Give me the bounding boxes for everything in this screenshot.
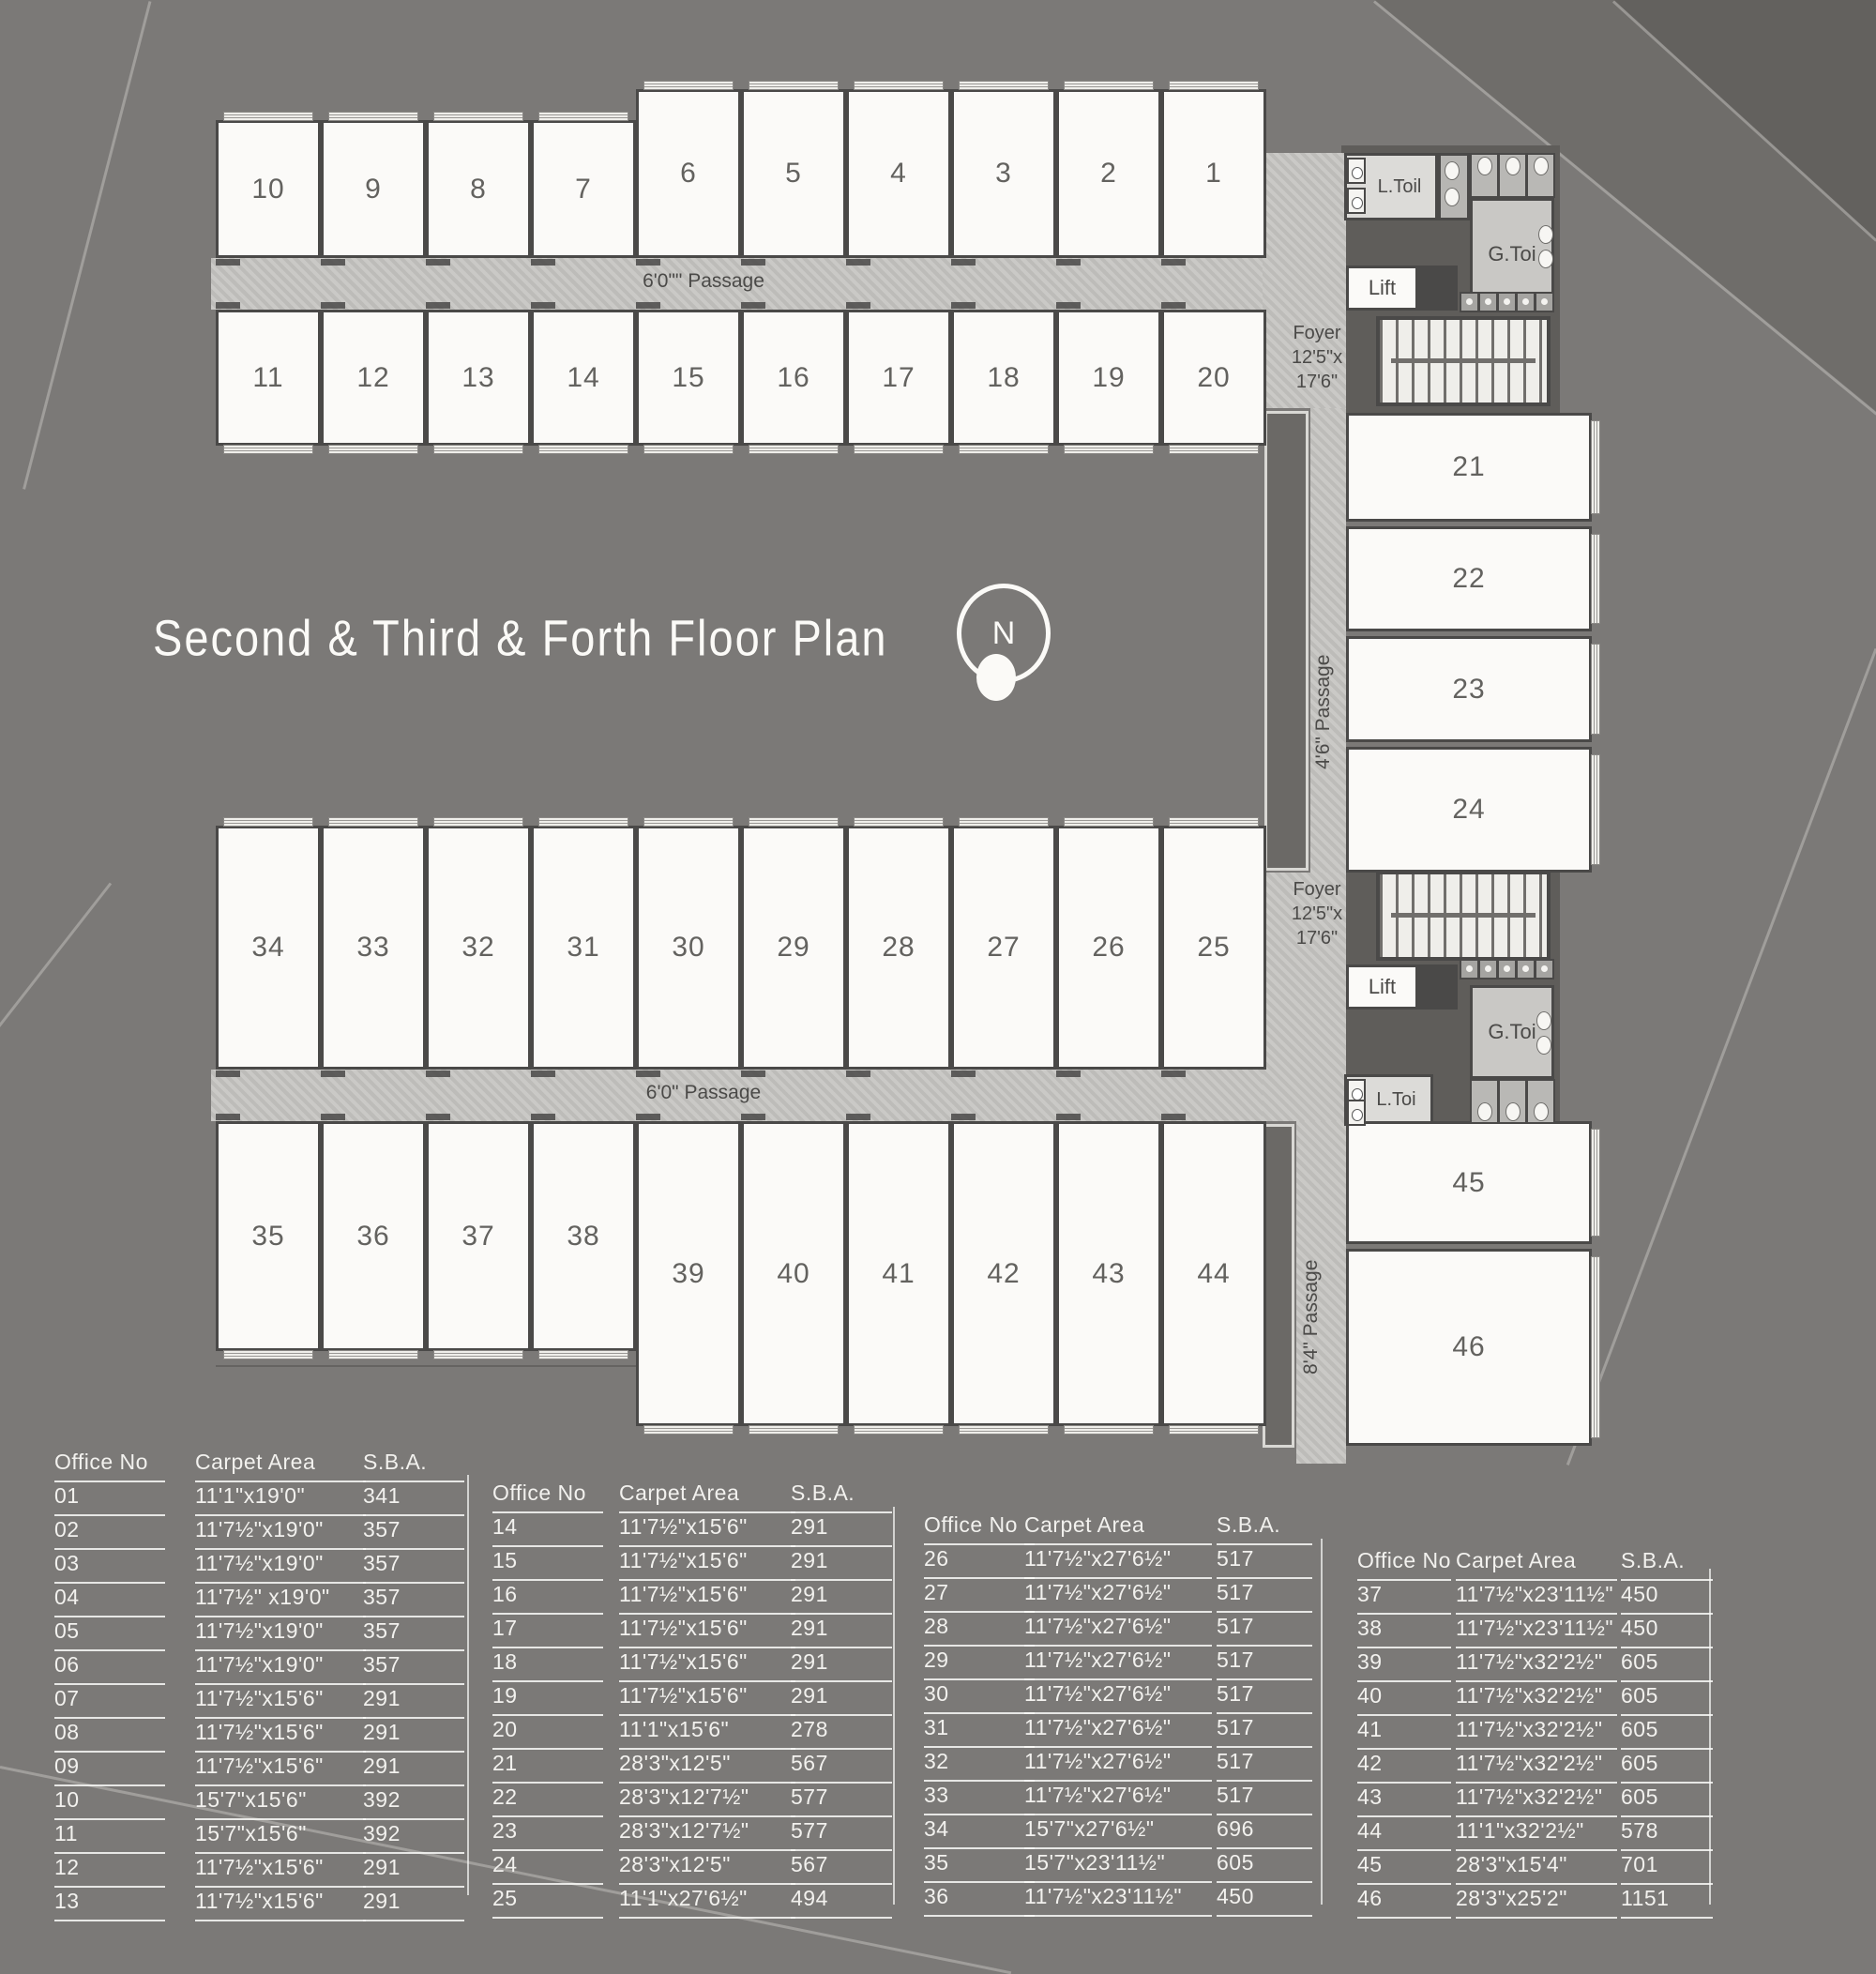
window-sill xyxy=(538,112,628,121)
carpet-area-cell: 11'1"x27'6½" xyxy=(619,1886,795,1919)
office-no-cell: 05 xyxy=(54,1618,165,1651)
office-unit: 4 xyxy=(846,89,951,258)
toilet-fixture xyxy=(1534,1102,1549,1121)
basin-fixture xyxy=(1538,225,1553,244)
carpet-area-cell: 11'7½"x27'6½" xyxy=(1024,1648,1212,1680)
wash-basin-dot xyxy=(1485,965,1491,972)
window-sill xyxy=(643,1425,734,1435)
door-threshold-strip xyxy=(216,1114,1263,1120)
table-divider xyxy=(1321,1539,1323,1905)
sba-cell: 278 xyxy=(791,1717,892,1750)
toilet-fixture xyxy=(1534,157,1549,175)
carpet-area-cell: 11'7½"x19'0" xyxy=(195,1652,366,1685)
sba-cell: 605 xyxy=(1621,1751,1713,1784)
office-no-cell: 33 xyxy=(924,1783,1035,1815)
sba-cell: 578 xyxy=(1621,1818,1713,1851)
window-sill xyxy=(433,1350,523,1359)
office-no-cell: 04 xyxy=(54,1585,165,1617)
window-sill xyxy=(223,817,313,827)
sba-cell: 291 xyxy=(791,1683,892,1716)
passage-top-label: 6'0"" Passage xyxy=(525,270,882,293)
table-header-carpet-area: Carpet Area xyxy=(1024,1512,1212,1545)
sba-cell: 577 xyxy=(791,1818,892,1851)
office-unit: 43 xyxy=(1056,1121,1161,1426)
passage-right-lower-label: 8'4" Passage xyxy=(1300,1131,1323,1374)
sba-cell: 567 xyxy=(791,1751,892,1784)
office-no-cell: 13 xyxy=(54,1889,165,1921)
stair-rail xyxy=(1391,913,1535,918)
carpet-area-cell: 11'7½"x23'11½" xyxy=(1456,1616,1617,1648)
office-unit: 36 xyxy=(321,1121,426,1351)
carpet-area-cell: 11'7½"x23'11½" xyxy=(1024,1884,1212,1917)
table-header-office-no: Office No xyxy=(492,1480,603,1513)
office-unit: 16 xyxy=(741,310,846,446)
wash-basin-dot xyxy=(1504,965,1510,972)
window-sill xyxy=(1064,81,1154,90)
office-no-cell: 26 xyxy=(924,1546,1035,1579)
window-sill xyxy=(1169,817,1259,827)
office-unit: 7 xyxy=(531,120,636,258)
office-no-cell: 08 xyxy=(54,1720,165,1753)
wash-basin-cell xyxy=(1478,959,1498,979)
foyer-label-middle: Foyer 12'5"x 17'6" xyxy=(1274,877,1360,950)
window-sill xyxy=(1169,445,1259,454)
table-divider xyxy=(1709,1569,1711,1905)
window-sill xyxy=(1169,81,1259,90)
window-sill xyxy=(854,445,944,454)
sba-cell: 291 xyxy=(791,1514,892,1547)
wash-basin-cell xyxy=(1460,959,1479,979)
office-unit: 23 xyxy=(1346,636,1592,742)
office-unit: 6 xyxy=(636,89,741,258)
office-no-cell: 22 xyxy=(492,1784,603,1817)
table-header-carpet-area: Carpet Area xyxy=(1456,1548,1617,1581)
sba-cell: 291 xyxy=(363,1720,464,1753)
basin-fixture xyxy=(1445,161,1460,180)
office-no-cell: 18 xyxy=(492,1649,603,1682)
wc-seat xyxy=(1352,167,1363,179)
office-no-cell: 16 xyxy=(492,1582,603,1615)
office-unit: 5 xyxy=(741,89,846,258)
window-sill xyxy=(328,1350,418,1359)
door-threshold-strip xyxy=(216,1071,1263,1077)
wall-block xyxy=(1418,964,1458,1010)
office-no-cell: 06 xyxy=(54,1652,165,1685)
window-sill xyxy=(1591,1129,1600,1237)
office-unit: 3 xyxy=(951,89,1056,258)
window-sill xyxy=(328,112,418,121)
carpet-area-cell: 11'7½"x27'6½" xyxy=(1024,1749,1212,1782)
office-unit: 30 xyxy=(636,826,741,1070)
wash-basin-cell xyxy=(1460,292,1479,312)
carpet-area-cell: 11'7½"x32'2½" xyxy=(1456,1683,1617,1716)
carpet-area-cell: 11'7½"x32'2½" xyxy=(1456,1649,1617,1682)
office-no-cell: 17 xyxy=(492,1616,603,1648)
office-unit: 15 xyxy=(636,310,741,446)
north-compass: N xyxy=(957,584,1051,683)
office-no-cell: 28 xyxy=(924,1614,1035,1647)
wash-basin-dot xyxy=(1466,965,1473,972)
carpet-area-cell: 11'7½"x27'6½" xyxy=(1024,1614,1212,1647)
wash-basin-dot xyxy=(1485,298,1491,305)
window-sill xyxy=(328,445,418,454)
window-sill xyxy=(749,81,839,90)
window-sill xyxy=(643,81,734,90)
wash-basin-cell xyxy=(1516,292,1536,312)
carpet-area-cell: 11'7½"x27'6½" xyxy=(1024,1783,1212,1815)
carpet-area-cell: 11'7½"x15'6" xyxy=(619,1683,795,1716)
sba-cell: 357 xyxy=(363,1585,464,1617)
office-no-cell: 07 xyxy=(54,1686,165,1719)
carpet-area-cell: 15'7"x15'6" xyxy=(195,1821,366,1854)
carpet-area-cell: 11'7½"x15'6" xyxy=(619,1582,795,1615)
sba-cell: 517 xyxy=(1217,1648,1312,1680)
wash-basin-cell xyxy=(1497,959,1517,979)
passage-right-upper-label: 4'6" Passage xyxy=(1312,525,1335,769)
window-sill xyxy=(959,445,1049,454)
carpet-area-cell: 11'7½"x32'2½" xyxy=(1456,1751,1617,1784)
sba-cell: 450 xyxy=(1621,1582,1713,1615)
window-sill xyxy=(749,817,839,827)
window-sill xyxy=(538,817,628,827)
wc-seat xyxy=(1352,1109,1363,1121)
sba-cell: 517 xyxy=(1217,1783,1312,1815)
carpet-area-cell: 11'7½"x23'11½" xyxy=(1456,1582,1617,1615)
toilet-fixture xyxy=(1477,1102,1492,1121)
office-unit: 21 xyxy=(1346,413,1592,522)
wash-basin-cell xyxy=(1516,959,1536,979)
office-no-cell: 01 xyxy=(54,1483,165,1516)
carpet-area-cell: 28'3"x12'5" xyxy=(619,1852,795,1885)
table-divider xyxy=(467,1475,469,1895)
foyer-line: 12'5"x xyxy=(1274,902,1360,926)
sba-cell: 450 xyxy=(1621,1616,1713,1648)
office-no-cell: 39 xyxy=(1357,1649,1451,1682)
wash-basin-cell xyxy=(1497,292,1517,312)
office-no-cell: 31 xyxy=(924,1715,1035,1748)
office-no-cell: 02 xyxy=(54,1517,165,1550)
window-sill xyxy=(643,817,734,827)
window-sill xyxy=(854,81,944,90)
wash-basin-dot xyxy=(1541,298,1548,305)
office-no-cell: 21 xyxy=(492,1751,603,1784)
sba-cell: 696 xyxy=(1217,1816,1312,1849)
window-sill xyxy=(749,445,839,454)
window-sill xyxy=(433,817,523,827)
office-no-cell: 15 xyxy=(492,1548,603,1581)
office-unit: 32 xyxy=(426,826,531,1070)
office-unit: 39 xyxy=(636,1121,741,1426)
office-no-cell: 11 xyxy=(54,1821,165,1854)
wash-basin-dot xyxy=(1541,965,1548,972)
window-sill xyxy=(1591,534,1600,624)
sba-cell: 392 xyxy=(363,1821,464,1854)
office-no-cell: 12 xyxy=(54,1855,165,1888)
carpet-area-cell: 11'7½"x15'6" xyxy=(195,1754,366,1786)
carpet-area-cell: 11'1"x32'2½" xyxy=(1456,1818,1617,1851)
light-shaft-upper xyxy=(1264,411,1309,871)
office-no-cell: 09 xyxy=(54,1754,165,1786)
carpet-area-cell: 11'7½"x15'6" xyxy=(195,1720,366,1753)
office-unit: 19 xyxy=(1056,310,1161,446)
toilet-fixture xyxy=(1505,157,1520,175)
compass-n: N xyxy=(992,615,1016,652)
office-no-cell: 41 xyxy=(1357,1717,1451,1750)
window-sill xyxy=(223,445,313,454)
carpet-area-cell: 11'7½"x27'6½" xyxy=(1024,1681,1212,1714)
office-unit: 2 xyxy=(1056,89,1161,258)
office-no-cell: 35 xyxy=(924,1850,1035,1883)
sba-cell: 357 xyxy=(363,1517,464,1550)
table-header-sba: S.B.A. xyxy=(791,1480,892,1513)
foyer-line: 17'6" xyxy=(1274,926,1360,950)
sba-cell: 605 xyxy=(1621,1717,1713,1750)
office-no-cell: 30 xyxy=(924,1681,1035,1714)
window-sill xyxy=(223,112,313,121)
window-sill xyxy=(959,81,1049,90)
window-sill xyxy=(538,445,628,454)
window-sill xyxy=(1591,420,1600,514)
window-sill xyxy=(433,445,523,454)
carpet-area-cell: 15'7"x23'11½" xyxy=(1024,1850,1212,1883)
sba-cell: 357 xyxy=(363,1618,464,1651)
carpet-area-cell: 28'3"x12'7½" xyxy=(619,1818,795,1851)
office-unit: 17 xyxy=(846,310,951,446)
sba-cell: 517 xyxy=(1217,1681,1312,1714)
window-sill xyxy=(749,1425,839,1435)
sba-cell: 291 xyxy=(363,1754,464,1786)
foyer-line: Foyer xyxy=(1274,321,1360,345)
office-no-cell: 25 xyxy=(492,1886,603,1919)
foyer-line: Foyer xyxy=(1274,877,1360,902)
sba-cell: 605 xyxy=(1621,1683,1713,1716)
table-header-sba: S.B.A. xyxy=(1621,1548,1713,1581)
carpet-area-cell: 11'7½"x15'6" xyxy=(195,1855,366,1888)
office-no-cell: 29 xyxy=(924,1648,1035,1680)
lift-label-top: Lift xyxy=(1369,276,1396,300)
carpet-area-cell: 28'3"x12'5" xyxy=(619,1751,795,1784)
office-unit: 12 xyxy=(321,310,426,446)
sba-cell: 291 xyxy=(791,1616,892,1648)
carpet-area-cell: 11'7½"x19'0" xyxy=(195,1517,366,1550)
foyer-line: 17'6" xyxy=(1274,370,1360,394)
passage-middle-label: 6'0" Passage xyxy=(525,1082,882,1104)
ladies-toilet-label-top: L.Toil xyxy=(1378,176,1422,198)
plan-title: Second & Third & Forth Floor Plan xyxy=(153,608,888,667)
site-boundary-line xyxy=(0,883,112,1032)
office-no-cell: 44 xyxy=(1357,1818,1451,1851)
office-unit: 26 xyxy=(1056,826,1161,1070)
office-unit: 41 xyxy=(846,1121,951,1426)
office-unit: 13 xyxy=(426,310,531,446)
office-unit: 10 xyxy=(216,120,321,258)
office-no-cell: 19 xyxy=(492,1683,603,1716)
office-unit: 22 xyxy=(1346,526,1592,631)
window-sill xyxy=(959,1425,1049,1435)
staircase xyxy=(1376,871,1551,961)
office-unit: 35 xyxy=(216,1121,321,1351)
office-no-cell: 14 xyxy=(492,1514,603,1547)
basin-fixture xyxy=(1538,250,1553,268)
sba-cell: 341 xyxy=(363,1483,464,1516)
ground-outline xyxy=(216,1365,638,1367)
office-no-cell: 45 xyxy=(1357,1852,1451,1885)
wc-fixture xyxy=(1347,158,1366,184)
sba-cell: 291 xyxy=(363,1855,464,1888)
gents-toilet-label-middle: G.Toi xyxy=(1488,1020,1536,1044)
sba-cell: 517 xyxy=(1217,1614,1312,1647)
window-sill xyxy=(1064,817,1154,827)
office-unit: 29 xyxy=(741,826,846,1070)
office-unit: 11 xyxy=(216,310,321,446)
sba-cell: 1151 xyxy=(1621,1886,1713,1919)
office-no-cell: 36 xyxy=(924,1884,1035,1917)
office-no-cell: 10 xyxy=(54,1787,165,1820)
carpet-area-cell: 11'1"x19'0" xyxy=(195,1483,366,1516)
sba-cell: 494 xyxy=(791,1886,892,1919)
office-unit: 9 xyxy=(321,120,426,258)
carpet-area-cell: 11'7½"x32'2½" xyxy=(1456,1717,1617,1750)
office-unit: 25 xyxy=(1161,826,1266,1070)
sba-cell: 605 xyxy=(1621,1649,1713,1682)
carpet-area-cell: 11'7½"x15'6" xyxy=(619,1548,795,1581)
sba-cell: 517 xyxy=(1217,1580,1312,1613)
toilet-fixture xyxy=(1505,1102,1520,1121)
carpet-area-cell: 11'7½"x32'2½" xyxy=(1456,1784,1617,1817)
gents-toilet-label-top: G.Toi xyxy=(1488,242,1536,266)
office-unit: 44 xyxy=(1161,1121,1266,1426)
lift-room-top: Lift xyxy=(1346,266,1418,311)
carpet-area-cell: 28'3"x12'7½" xyxy=(619,1784,795,1817)
carpet-area-cell: 11'7½"x27'6½" xyxy=(1024,1580,1212,1613)
staircase xyxy=(1376,316,1551,406)
wash-basin-dot xyxy=(1466,298,1473,305)
sba-cell: 291 xyxy=(791,1548,892,1581)
office-no-cell: 46 xyxy=(1357,1886,1451,1919)
window-sill xyxy=(1591,644,1600,735)
office-unit: 20 xyxy=(1161,310,1266,446)
office-no-cell: 20 xyxy=(492,1717,603,1750)
office-no-cell: 37 xyxy=(1357,1582,1451,1615)
stair-rail xyxy=(1391,358,1535,363)
office-unit: 8 xyxy=(426,120,531,258)
basin-fixture xyxy=(1445,188,1460,206)
window-sill xyxy=(1064,1425,1154,1435)
office-no-cell: 32 xyxy=(924,1749,1035,1782)
window-sill xyxy=(538,1350,628,1359)
carpet-area-cell: 11'7½"x15'6" xyxy=(619,1649,795,1682)
office-no-cell: 27 xyxy=(924,1580,1035,1613)
wc-fixture xyxy=(1347,1100,1366,1126)
sba-cell: 450 xyxy=(1217,1884,1312,1917)
table-header-office-no: Office No xyxy=(54,1450,165,1482)
carpet-area-cell: 11'7½" x19'0" xyxy=(195,1585,366,1617)
sba-cell: 291 xyxy=(791,1649,892,1682)
lift-room-middle: Lift xyxy=(1346,964,1418,1010)
window-sill xyxy=(1591,1256,1600,1438)
wash-basin-cell xyxy=(1535,292,1554,312)
sba-cell: 517 xyxy=(1217,1749,1312,1782)
sba-cell: 291 xyxy=(363,1889,464,1921)
sba-cell: 291 xyxy=(363,1686,464,1719)
sba-cell: 567 xyxy=(791,1852,892,1885)
window-sill xyxy=(643,445,734,454)
sba-cell: 701 xyxy=(1621,1852,1713,1885)
sba-cell: 605 xyxy=(1621,1784,1713,1817)
office-unit: 37 xyxy=(426,1121,531,1351)
basin-fixture xyxy=(1536,1011,1551,1030)
carpet-area-cell: 11'7½"x15'6" xyxy=(619,1514,795,1547)
basin-fixture xyxy=(1536,1036,1551,1055)
table-header-carpet-area: Carpet Area xyxy=(619,1480,795,1513)
office-unit: 38 xyxy=(531,1121,636,1351)
office-no-cell: 38 xyxy=(1357,1616,1451,1648)
carpet-area-cell: 11'7½"x19'0" xyxy=(195,1551,366,1584)
office-unit: 27 xyxy=(951,826,1056,1070)
table-divider xyxy=(893,1507,895,1905)
office-no-cell: 40 xyxy=(1357,1683,1451,1716)
office-no-cell: 03 xyxy=(54,1551,165,1584)
office-unit: 45 xyxy=(1346,1121,1592,1244)
table-header-office-no: Office No xyxy=(1357,1548,1451,1581)
foyer-line: 12'5"x xyxy=(1274,345,1360,370)
carpet-area-cell: 28'3"x25'2" xyxy=(1456,1886,1617,1919)
foyer-label-top: Foyer 12'5"x 17'6" xyxy=(1274,321,1360,394)
wash-basin-dot xyxy=(1522,965,1529,972)
sba-cell: 605 xyxy=(1217,1850,1312,1883)
office-unit: 46 xyxy=(1346,1249,1592,1446)
carpet-area-cell: 11'7½"x27'6½" xyxy=(1024,1715,1212,1748)
office-no-cell: 42 xyxy=(1357,1751,1451,1784)
window-sill xyxy=(854,1425,944,1435)
toilet-fixture xyxy=(1477,157,1492,175)
sba-cell: 517 xyxy=(1217,1715,1312,1748)
office-unit: 34 xyxy=(216,826,321,1070)
carpet-area-cell: 11'1"x15'6" xyxy=(619,1717,795,1750)
table-header-sba: S.B.A. xyxy=(363,1450,464,1482)
sba-cell: 517 xyxy=(1217,1546,1312,1579)
window-sill xyxy=(328,817,418,827)
window-sill xyxy=(1064,445,1154,454)
table-header-carpet-area: Carpet Area xyxy=(195,1450,366,1482)
site-boundary-line xyxy=(1566,648,1876,1465)
window-sill xyxy=(1591,754,1600,865)
carpet-area-cell: 28'3"x15'4" xyxy=(1456,1852,1617,1885)
sba-cell: 577 xyxy=(791,1784,892,1817)
office-unit: 40 xyxy=(741,1121,846,1426)
carpet-area-cell: 11'7½"x15'6" xyxy=(619,1616,795,1648)
office-unit: 31 xyxy=(531,826,636,1070)
office-unit: 42 xyxy=(951,1121,1056,1426)
sba-cell: 291 xyxy=(791,1582,892,1615)
carpet-area-cell: 11'7½"x15'6" xyxy=(195,1686,366,1719)
window-sill xyxy=(433,112,523,121)
office-unit: 24 xyxy=(1346,747,1592,873)
floor-plan: L.Toil G.Toi Lift Lift G.Toi L.Toi 6'0""… xyxy=(0,0,1876,1958)
wash-basin-cell xyxy=(1535,959,1554,979)
table-header-office-no: Office No xyxy=(924,1512,1035,1545)
wc-seat xyxy=(1352,197,1363,209)
compass-pointer xyxy=(976,654,1016,701)
window-sill xyxy=(959,817,1049,827)
window-sill xyxy=(223,1350,313,1359)
sba-cell: 357 xyxy=(363,1551,464,1584)
office-unit: 33 xyxy=(321,826,426,1070)
sba-cell: 392 xyxy=(363,1787,464,1820)
carpet-area-cell: 11'7½"x27'6½" xyxy=(1024,1546,1212,1579)
window-sill xyxy=(854,817,944,827)
office-no-cell: 23 xyxy=(492,1818,603,1851)
